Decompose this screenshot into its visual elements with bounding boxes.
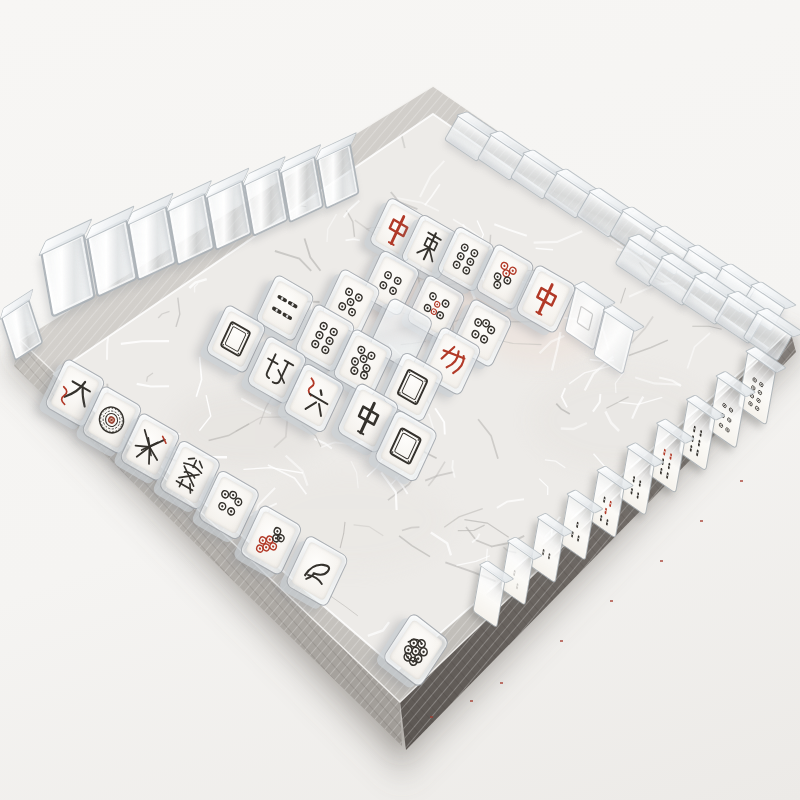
skirt-red-speck: [610, 600, 613, 602]
photo-canvas: { "scene": { "subject": "acrylic mahjong…: [0, 0, 800, 800]
skirt-red-speck: [560, 640, 563, 642]
skirt-red-speck: [660, 560, 663, 562]
skirt-red-speck: [740, 480, 743, 482]
skirt-red-speck: [700, 520, 703, 522]
skirt-red-speck: [470, 700, 473, 702]
skirt-red-speck: [500, 682, 503, 684]
skirt-red-speck: [430, 716, 433, 718]
